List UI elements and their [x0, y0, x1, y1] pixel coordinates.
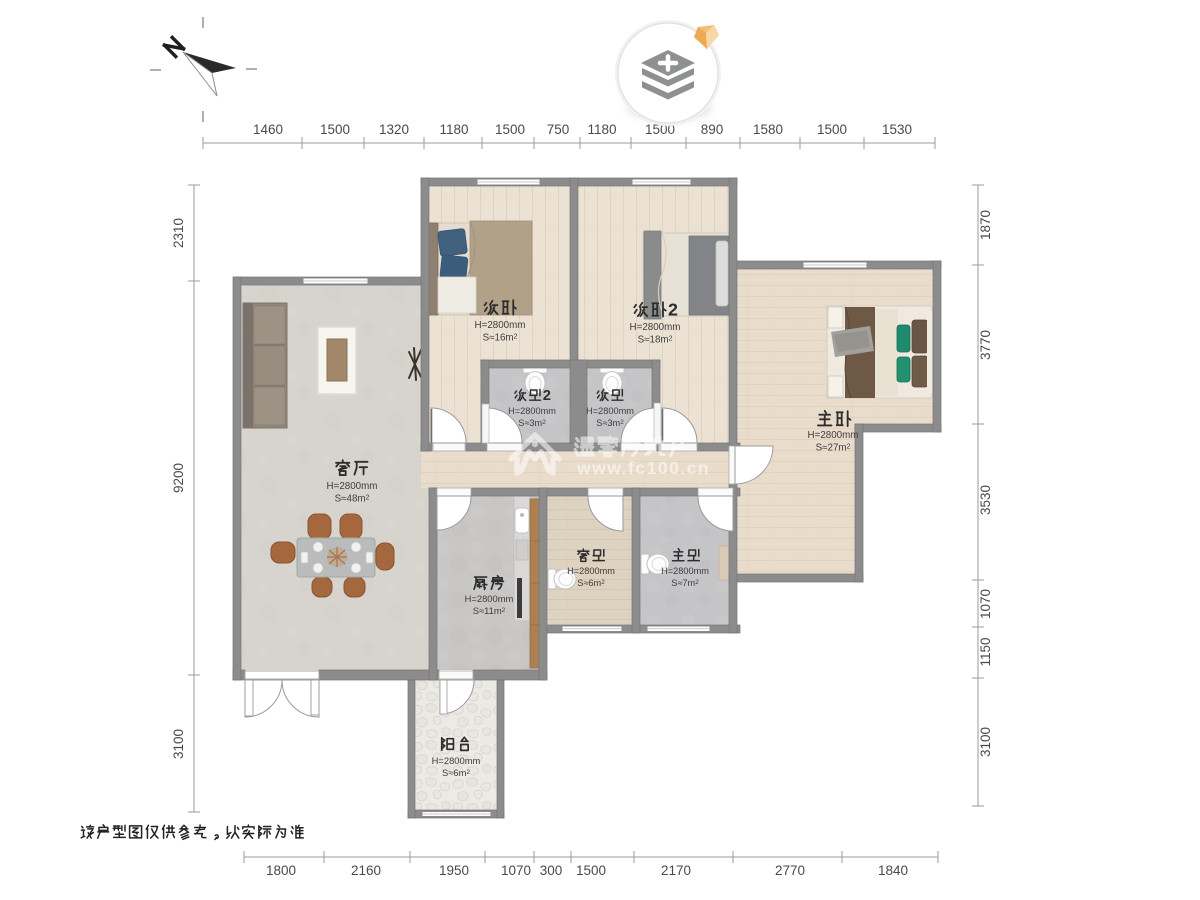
svg-text:3100: 3100	[978, 727, 993, 757]
svg-text:1070: 1070	[501, 863, 531, 878]
svg-text:750: 750	[547, 122, 570, 137]
svg-text:9200: 9200	[171, 463, 186, 493]
svg-text:1500: 1500	[817, 122, 847, 137]
svg-text:2: 2	[543, 388, 551, 404]
svg-text:S≈3m2: S≈3m2	[518, 418, 546, 428]
svg-text:1070: 1070	[978, 589, 993, 619]
svg-text:1180: 1180	[587, 122, 616, 137]
svg-text:1150: 1150	[978, 637, 993, 666]
svg-text:H=2800mm: H=2800mm	[475, 320, 526, 331]
svg-text:H=2800mm: H=2800mm	[508, 406, 556, 416]
svg-text:H=2800mm: H=2800mm	[808, 430, 859, 441]
svg-text:S≈6m2: S≈6m2	[442, 767, 470, 778]
svg-text:1530: 1530	[882, 122, 912, 137]
svg-text:S≈18m2: S≈18m2	[638, 334, 673, 345]
svg-text:1500: 1500	[495, 122, 525, 137]
svg-text:S≈3m2: S≈3m2	[596, 418, 624, 428]
svg-text:300: 300	[540, 863, 563, 878]
svg-text:S≈6m2: S≈6m2	[577, 578, 605, 588]
svg-text:890: 890	[701, 122, 724, 137]
svg-text:2: 2	[668, 300, 678, 320]
svg-text:H=2800mm: H=2800mm	[327, 481, 378, 492]
svg-text:S≈27m2: S≈27m2	[816, 442, 851, 453]
svg-text:1320: 1320	[379, 122, 409, 137]
svg-text:2170: 2170	[661, 863, 691, 878]
svg-text:1950: 1950	[439, 863, 469, 878]
svg-text:1580: 1580	[753, 122, 783, 137]
svg-text:1460: 1460	[253, 122, 283, 137]
svg-text:H=2800mm: H=2800mm	[567, 566, 615, 576]
svg-text:2770: 2770	[775, 863, 805, 878]
svg-text:www.fc100.cn: www.fc100.cn	[576, 458, 710, 478]
svg-text:1800: 1800	[266, 863, 296, 878]
svg-text:1840: 1840	[878, 863, 908, 878]
svg-text:3530: 3530	[978, 485, 993, 515]
svg-text:H=2800mm: H=2800mm	[661, 566, 709, 576]
svg-text:S≈7m2: S≈7m2	[671, 578, 699, 588]
svg-text:1870: 1870	[978, 210, 993, 240]
svg-text:H=2800mm: H=2800mm	[586, 406, 634, 416]
svg-text:1500: 1500	[576, 863, 606, 878]
svg-text:H=2800mm: H=2800mm	[432, 755, 481, 766]
svg-text:1500: 1500	[320, 122, 350, 137]
svg-text:3770: 3770	[978, 330, 993, 360]
svg-text:3100: 3100	[171, 729, 186, 759]
svg-text:2310: 2310	[171, 218, 186, 248]
svg-text:H=2800mm: H=2800mm	[630, 322, 681, 333]
svg-text:1180: 1180	[439, 122, 468, 137]
svg-text:S≈11m2: S≈11m2	[473, 605, 506, 616]
svg-text:S≈48m2: S≈48m2	[335, 493, 370, 504]
svg-text:S≈16m2: S≈16m2	[483, 332, 518, 343]
svg-text:H=2800mm: H=2800mm	[465, 593, 514, 604]
svg-text:2160: 2160	[351, 863, 381, 878]
